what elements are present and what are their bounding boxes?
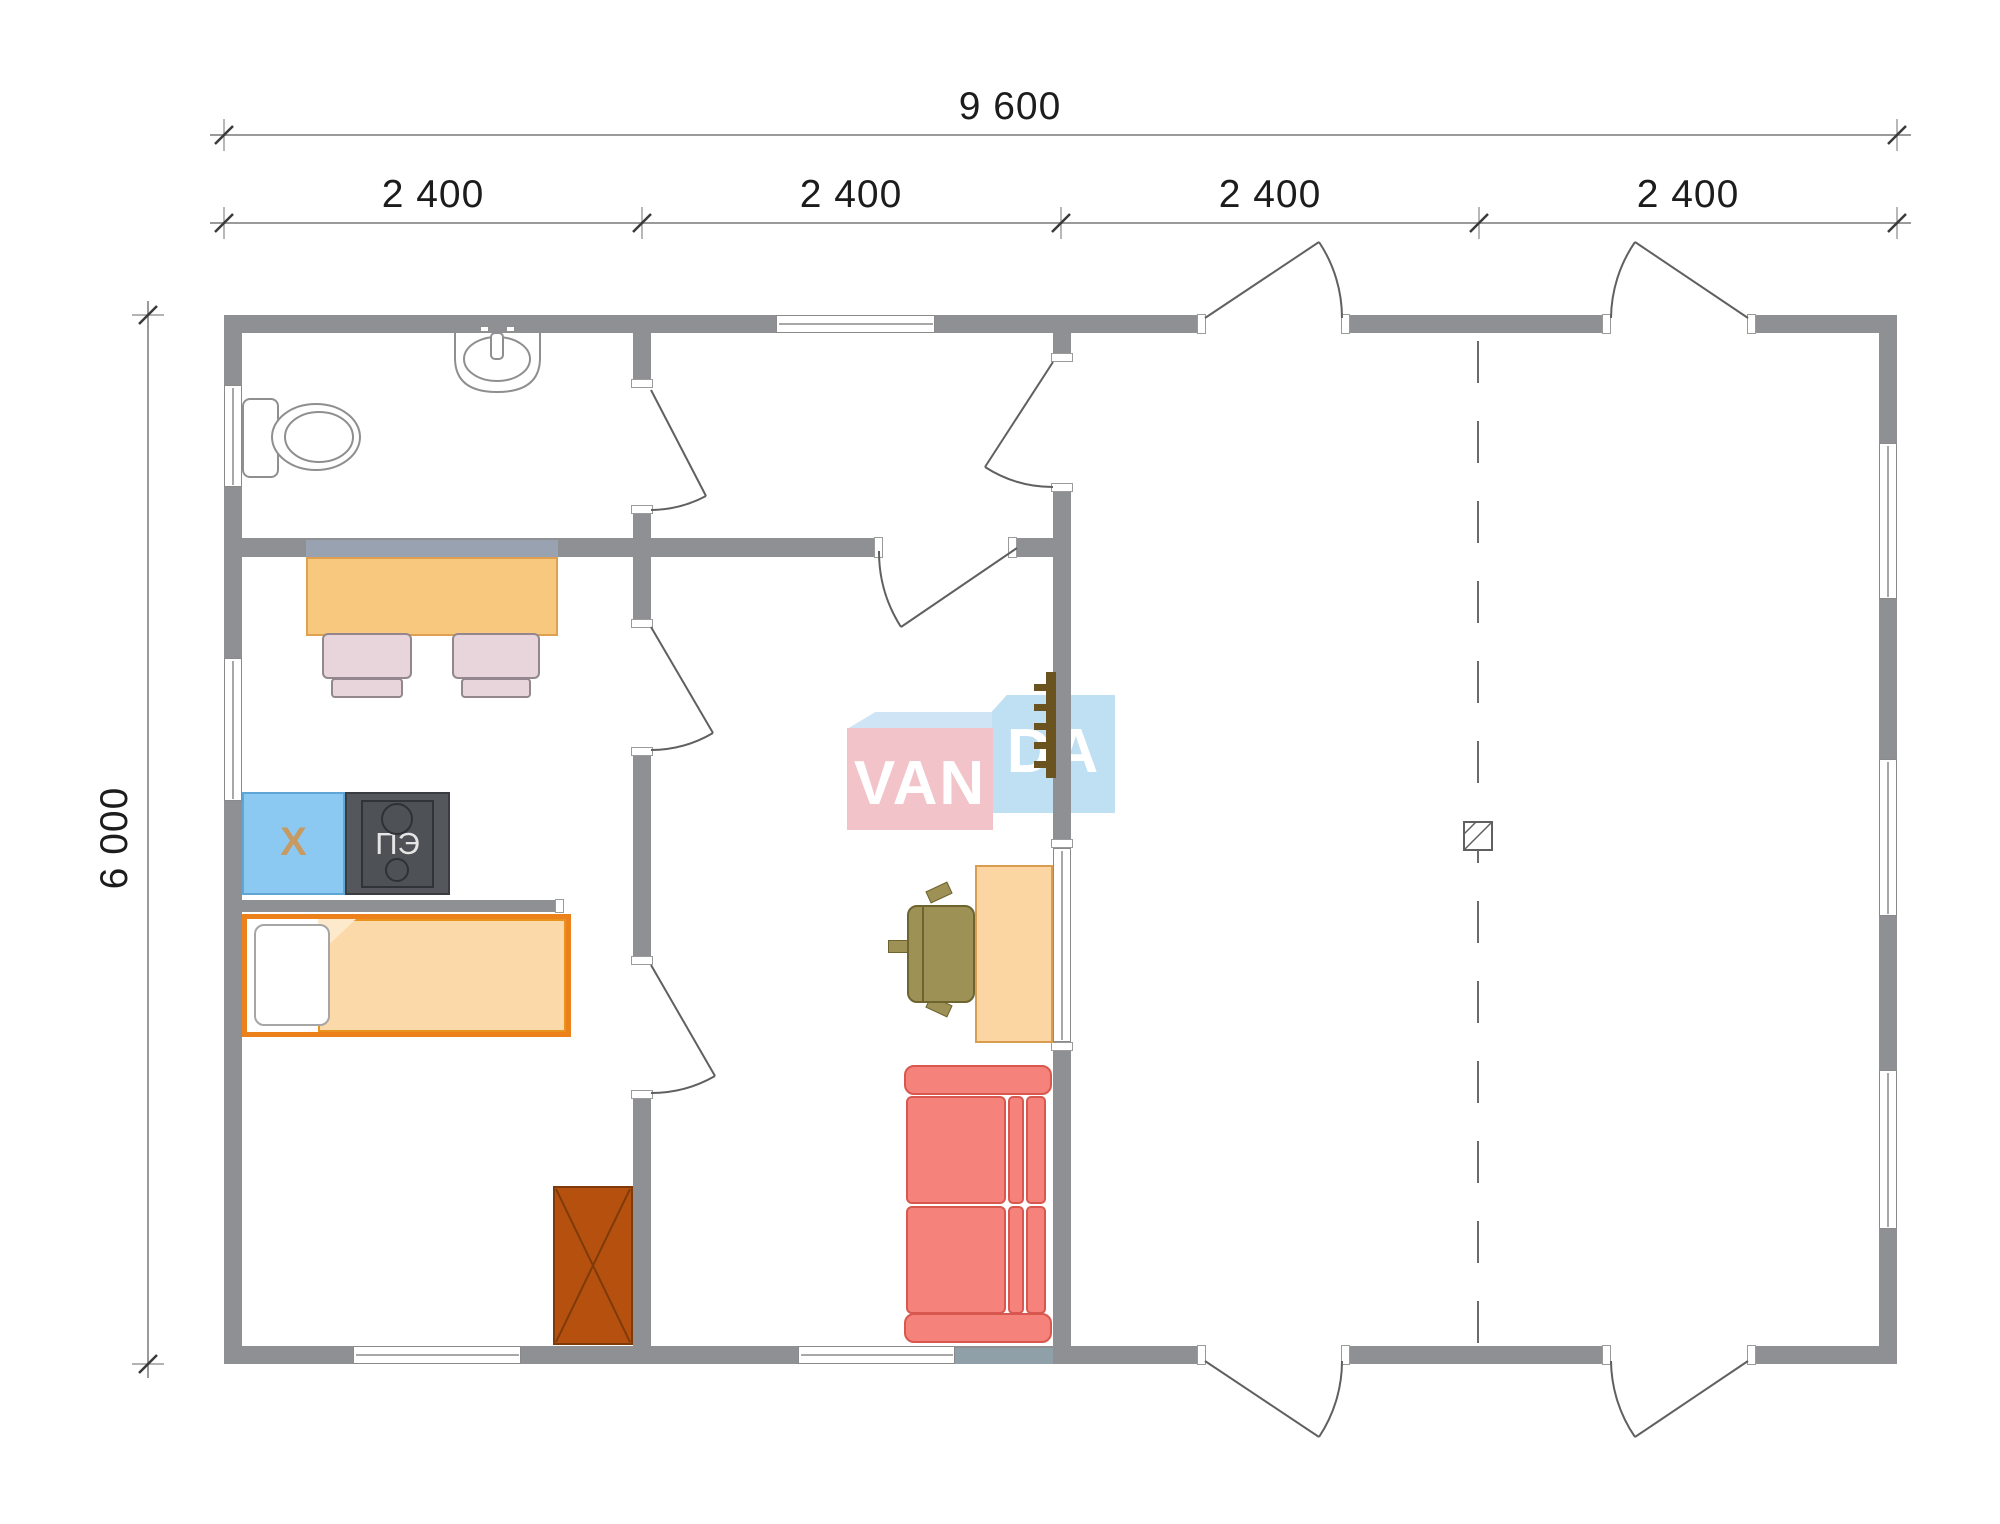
wall-right xyxy=(1879,315,1897,443)
wall-bottom xyxy=(521,1346,798,1364)
bed-blanket xyxy=(318,919,566,1032)
wall-top xyxy=(1755,315,1897,333)
dim-total-width-label: 9 600 xyxy=(910,85,1110,129)
door-jamb xyxy=(874,537,883,558)
wall-interior-vertical-a xyxy=(633,1093,651,1346)
sofa-armrest xyxy=(904,1313,1052,1343)
wall-top xyxy=(1349,315,1611,333)
window xyxy=(1879,1070,1897,1229)
window xyxy=(224,658,242,801)
wall-right xyxy=(1879,1229,1897,1364)
door-jamb xyxy=(631,956,653,965)
wall-interior-horizontal-b xyxy=(1017,538,1053,557)
bed-pillow xyxy=(254,924,330,1026)
door-jamb xyxy=(1051,483,1073,492)
window xyxy=(1879,759,1897,916)
exterior-door-swing xyxy=(1205,242,1748,1437)
office-chair xyxy=(907,905,975,1003)
door-jamb xyxy=(631,505,653,514)
sofa-seat-cushion xyxy=(906,1206,1006,1314)
wall-top xyxy=(224,315,776,333)
door-jamb xyxy=(1602,314,1611,334)
door-jamb xyxy=(1051,353,1073,362)
dim-height-label: 6 000 xyxy=(95,778,135,898)
stove-label: ПЭ xyxy=(345,826,450,862)
sofa-seat-cushion xyxy=(906,1096,1006,1204)
ladder-rung xyxy=(1034,684,1048,691)
wall-left xyxy=(224,487,242,658)
window xyxy=(776,315,935,333)
door-jamb xyxy=(1602,1345,1611,1365)
logo-text-van: VAN xyxy=(847,748,993,819)
wall-interior-vertical-c xyxy=(1053,487,1071,848)
kitchen-table xyxy=(306,557,558,636)
chair xyxy=(331,678,403,698)
door-jamb xyxy=(631,379,653,388)
door-jamb xyxy=(1197,314,1206,334)
wall-left xyxy=(224,801,242,1364)
window xyxy=(1879,443,1897,599)
interior-glazing xyxy=(1053,848,1071,1042)
floor-plan-canvas: VAN DA xyxy=(0,0,2000,1524)
wall-shadow-tint xyxy=(306,540,558,557)
toilet xyxy=(243,399,360,477)
wall-interior-vertical-a xyxy=(633,508,651,627)
wall-top xyxy=(935,315,1205,333)
sink xyxy=(455,326,540,392)
sofa-back-cushion xyxy=(1008,1206,1024,1314)
window xyxy=(798,1346,955,1364)
dim-segment-label-1: 2 400 xyxy=(333,173,533,217)
door-jamb xyxy=(631,1090,653,1099)
door-jamb xyxy=(1051,1042,1073,1051)
door-jamb xyxy=(1747,314,1756,334)
chair xyxy=(461,678,531,698)
door-jamb xyxy=(1197,1345,1206,1365)
dim-segment-label-3: 2 400 xyxy=(1170,173,1370,217)
chimney-symbol xyxy=(1464,822,1492,850)
door-jamb xyxy=(555,899,564,913)
wall-interior-horizontal-d xyxy=(242,900,563,912)
chair xyxy=(452,633,540,679)
wall-bottom xyxy=(1349,1346,1611,1364)
window xyxy=(353,1346,521,1364)
door-jamb xyxy=(631,619,653,628)
wall-right xyxy=(1879,599,1897,759)
chair xyxy=(322,633,412,679)
desk xyxy=(975,865,1053,1043)
door-jamb xyxy=(1747,1345,1756,1365)
wall-left xyxy=(224,315,242,385)
ladder-rung xyxy=(1034,742,1048,749)
office-chair-leg xyxy=(925,882,952,904)
door-jamb xyxy=(1341,1345,1350,1365)
wall-right xyxy=(1879,916,1897,1070)
wall-shadow-tint xyxy=(955,1348,1053,1364)
logo-top-face xyxy=(847,712,1013,729)
sofa-armrest xyxy=(904,1065,1052,1095)
wall-bottom xyxy=(1755,1346,1897,1364)
wall-interior-vertical-c xyxy=(1053,1042,1071,1346)
sofa-back-cushion xyxy=(1008,1096,1024,1204)
sofa-back-cushion xyxy=(1026,1096,1046,1204)
sofa-back-cushion xyxy=(1026,1206,1046,1314)
door-jamb xyxy=(1341,314,1350,334)
door-jamb xyxy=(1051,839,1073,848)
door-jamb xyxy=(1008,537,1017,558)
door-jamb xyxy=(631,747,653,756)
dim-segment-label-2: 2 400 xyxy=(751,173,951,217)
ladder-rung xyxy=(1034,723,1048,730)
dim-segment-label-4: 2 400 xyxy=(1588,173,1788,217)
ladder-rung xyxy=(1034,761,1048,768)
fridge-label: Х xyxy=(242,820,345,865)
wardrobe xyxy=(553,1186,633,1345)
wall-bottom xyxy=(224,1346,353,1364)
window xyxy=(224,385,242,487)
wall-interior-vertical-a xyxy=(633,750,651,965)
ladder-rung xyxy=(1034,704,1048,711)
